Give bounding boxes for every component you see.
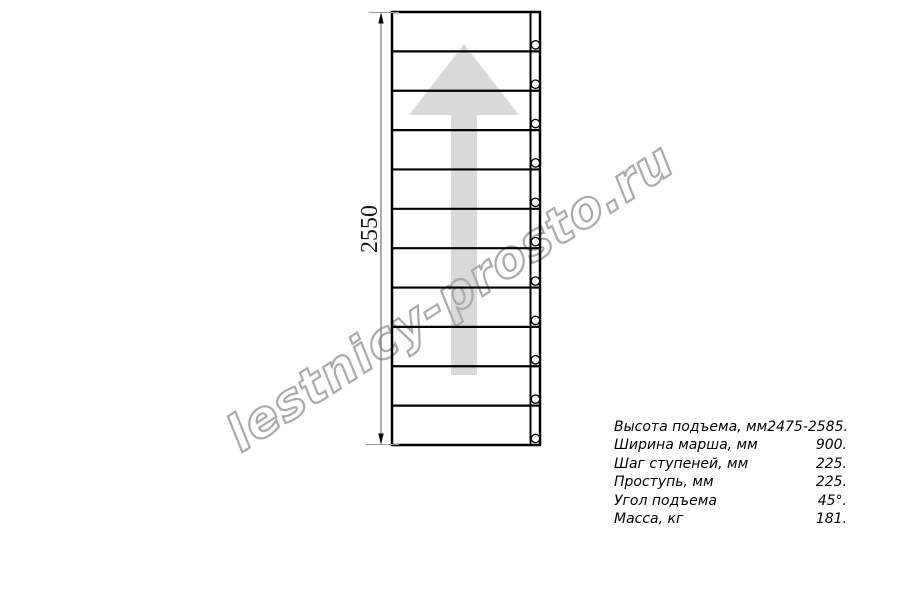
bolt-hole <box>531 395 539 403</box>
spec-value: 2475-2585. <box>767 418 848 436</box>
spec-value: 900. <box>816 436 847 454</box>
spec-label: Высота подъема, мм <box>614 418 767 436</box>
dimension-label: 2550 <box>357 205 383 253</box>
bolt-hole <box>531 356 539 364</box>
bolt-hole <box>531 80 539 88</box>
bolt-hole <box>531 434 539 442</box>
spec-value: 225. <box>816 455 847 473</box>
bolt-hole <box>531 237 539 245</box>
watermark-text: lestnicy-prosto.ru <box>216 131 684 463</box>
spec-value: 45°. <box>818 492 847 510</box>
bolt-hole <box>531 277 539 285</box>
spec-value: 181. <box>816 510 847 528</box>
spec-row-width: Ширина марша, мм 900. <box>614 436 847 454</box>
bolt-hole <box>531 316 539 324</box>
spec-row-step-pitch: Шаг ступеней, мм 225. <box>614 455 847 473</box>
spec-label: Масса, кг <box>614 510 683 528</box>
spec-row-tread: Проступь, мм 225. <box>614 473 847 491</box>
bolt-hole <box>531 198 539 206</box>
bolt-hole <box>531 159 539 167</box>
spec-value: 225. <box>816 473 847 491</box>
spec-label: Шаг ступеней, мм <box>614 455 748 473</box>
spec-row-angle: Угол подъема 45°. <box>614 492 847 510</box>
spec-label: Угол подъема <box>614 492 717 510</box>
spec-row-mass: Масса, кг 181. <box>614 510 847 528</box>
dimension-arrowhead-up-icon <box>378 13 383 24</box>
page-canvas: lestnicy-prosto.ru 2550 Высота подъема, … <box>0 0 900 600</box>
dimension-arrowhead-down-icon <box>378 434 383 445</box>
specs-table: Высота подъема, мм 2475-2585. Ширина мар… <box>614 418 847 528</box>
spec-label: Проступь, мм <box>614 473 714 491</box>
bolt-hole <box>531 119 539 127</box>
spec-label: Ширина марша, мм <box>614 436 758 454</box>
bolt-hole <box>531 41 539 49</box>
spec-row-height: Высота подъема, мм 2475-2585. <box>614 418 847 436</box>
